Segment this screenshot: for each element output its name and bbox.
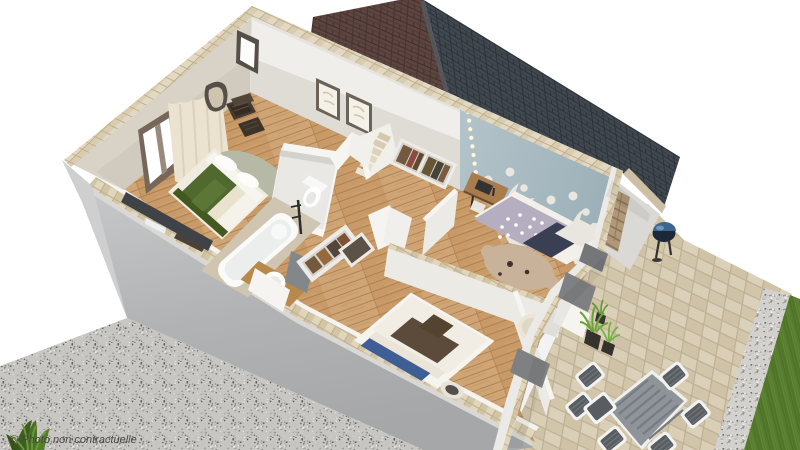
svg-text:© Photo non contractuelle: © Photo non contractuelle <box>10 434 137 446</box>
